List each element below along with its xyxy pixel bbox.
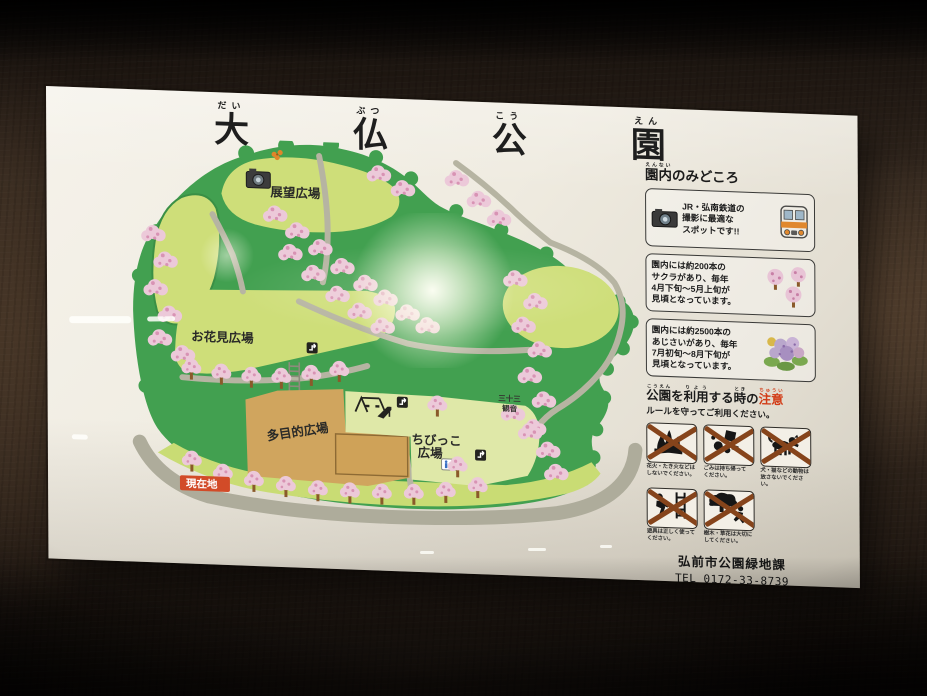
edge-glint xyxy=(600,545,612,548)
scuff-mark xyxy=(72,434,88,440)
camera-icon xyxy=(651,207,678,228)
edge-glint xyxy=(420,551,434,554)
sakura-info-box: 園内には約200本の サクラがあり、毎年 4月下旬～5月上旬が 見頃となっていま… xyxy=(645,253,815,317)
rule-tiles: 花火・たき火などはしないでください。 ごみは持ち帰っ xyxy=(646,422,817,552)
info-panel: 園内えんないのみどころ JR・弘南鉄道の 撮影に最適な スポットです!! xyxy=(645,162,817,589)
rule-caption: 犬・猫などの動物は放さないでください。 xyxy=(760,467,811,489)
label-kannon-2: 観音 xyxy=(502,403,518,414)
bench-icon xyxy=(475,449,486,460)
bench-icon xyxy=(307,342,318,353)
rule-tile: 遊具は正しく使ってください。 xyxy=(647,488,698,544)
train-icon xyxy=(779,204,809,241)
sakura-trees-icon xyxy=(763,264,809,310)
highlights-header: 園内えんないのみどころ xyxy=(645,162,815,189)
label-kannon-1: 三十三 xyxy=(498,393,521,404)
photo-spot-text: JR・弘南鉄道の 撮影に最適な スポットです!! xyxy=(682,201,775,238)
sakura-text: 園内には約200本の サクラがあり、毎年 4月下旬～5月上旬が 見頃となっていま… xyxy=(651,260,759,309)
label-kids-plaza-2: 広場 xyxy=(418,445,444,461)
photo-spot-box: JR・弘南鉄道の 撮影に最適な スポットです!! xyxy=(645,188,815,252)
label-viewpoint-plaza: 展望広場 xyxy=(270,184,321,201)
svg-text:現在地: 現在地 xyxy=(186,477,218,491)
scuff-mark xyxy=(147,316,175,321)
prohibition-x xyxy=(704,425,753,465)
rule-caption: 花火・たき火などはしないでください。 xyxy=(646,463,697,478)
rule-tile: 花火・たき火などはしないでください。 xyxy=(646,422,697,485)
contact-footer: 弘前市公園緑地課 TEL 0172-33-8739 xyxy=(647,549,817,589)
rule-tile: 犬・猫などの動物は放さないでください。 xyxy=(760,426,811,489)
prohibition-x xyxy=(648,489,697,529)
bench-icon xyxy=(397,397,408,408)
rule-caption: ごみは持ち帰ってください。 xyxy=(703,465,754,480)
scuff-mark xyxy=(69,316,131,323)
current-location-marker: 現在地 xyxy=(180,475,230,492)
prohibition-x xyxy=(705,491,754,531)
park-sign-board: 大だい 仏ぶつ 公こう 園えん xyxy=(46,86,860,588)
rule-tile: 樹木・草花は大切にしてください。 xyxy=(704,490,755,546)
ajisai-text: 園内には約2500本の あじさいがあり、毎年 7月初旬～8月下旬が 見頃となって… xyxy=(652,325,758,374)
park-map: 展望広場 お花見広場 多目的広場 ちびっこ 広場 三十三 観音 現在地 xyxy=(126,135,648,569)
label-hanami-plaza: お花見広場 xyxy=(191,328,254,345)
prohibition-x xyxy=(647,423,696,463)
hydrangea-icon xyxy=(762,331,810,373)
rule-caption: 樹木・草花は大切にしてください。 xyxy=(704,531,755,546)
photo-of-signboard: 大だい 仏ぶつ 公こう 園えん xyxy=(0,0,927,696)
prohibition-x xyxy=(761,427,810,467)
edge-glint xyxy=(528,548,546,551)
rule-tile: ごみは持ち帰ってください。 xyxy=(703,424,754,487)
ajisai-info-box: 園内には約2500本の あじさいがあり、毎年 7月初旬～8月下旬が 見頃となって… xyxy=(646,318,816,382)
rule-caption: 遊具は正しく使ってください。 xyxy=(647,529,698,544)
